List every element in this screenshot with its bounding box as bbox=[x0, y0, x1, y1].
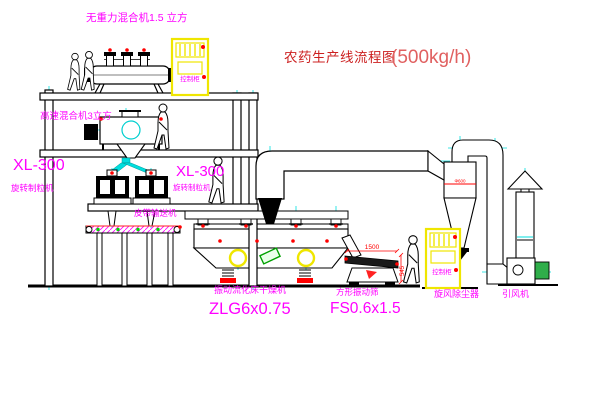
floor-slab-top bbox=[40, 93, 258, 100]
cabinet-top-label: 控制柜 bbox=[180, 74, 200, 83]
label-high-speed-mixer: 高速混合机3立方 bbox=[40, 110, 112, 122]
label-belt-conveyor: 皮带输送机 bbox=[134, 208, 177, 218]
duct-reducer bbox=[428, 151, 444, 180]
dim-screen-height: 545 bbox=[400, 265, 406, 276]
label-dryer-name: 振动流化床干燥机 bbox=[214, 284, 286, 295]
granulator-left bbox=[94, 170, 131, 226]
diagram-capacity: (500kg/h) bbox=[391, 47, 471, 68]
fluid-bed-dryer bbox=[194, 224, 348, 283]
belt-conveyor bbox=[86, 226, 180, 286]
label-granulator-left-name: 旋转制粒机 bbox=[11, 183, 54, 193]
square-vibrating-screen bbox=[342, 235, 403, 285]
diagram-title: 农药生产线流程图 bbox=[284, 50, 396, 65]
control-cabinet-right: 控制柜 bbox=[426, 229, 460, 288]
label-screen-model: FS0.6x1.5 bbox=[330, 300, 401, 317]
label-granulator-left-model: XL-300 bbox=[13, 157, 65, 174]
label-granulator-right-model: XL-300 bbox=[176, 163, 224, 180]
dim-cyclone-diameter: Φ600 bbox=[454, 179, 466, 184]
label-gravity-mixer: 无重力混合机1.5 立方 bbox=[86, 11, 188, 24]
process-flow-diagram: 控制柜 控制柜 无重力混合机1.5 立方 农药生产线流程图 (500kg/h bbox=[0, 0, 600, 403]
label-screen-name: 方形振动筛 bbox=[336, 287, 379, 297]
induced-draft-fan bbox=[507, 258, 535, 284]
pipe-elbow bbox=[487, 264, 509, 284]
label-dryer-model: ZLG6x0.75 bbox=[209, 300, 291, 318]
fan-motor-icon bbox=[535, 262, 549, 279]
floor-slab-middle bbox=[40, 150, 258, 157]
cad-drawing: 控制柜 控制柜 无重力混合机1.5 立方 农药生产线流程图 (500kg/h bbox=[0, 0, 600, 403]
cabinet-right-label: 控制柜 bbox=[432, 267, 452, 276]
control-cabinet-top: 控制柜 bbox=[172, 39, 208, 95]
ground-line bbox=[28, 285, 558, 288]
worker-figure bbox=[68, 53, 80, 90]
dryer-foot-pad bbox=[220, 278, 236, 283]
dryer-foot-pad bbox=[297, 278, 313, 283]
worker-figure bbox=[81, 51, 94, 90]
label-granulator-right-name: 旋转制粒机 bbox=[173, 182, 211, 192]
dim-screen-length: 1500 bbox=[365, 244, 380, 251]
screen-deck bbox=[345, 256, 398, 268]
gravity-free-mixer bbox=[84, 52, 176, 93]
label-fan: 引风机 bbox=[502, 288, 529, 299]
rain-cap-icon bbox=[508, 171, 542, 189]
exhaust-stack bbox=[516, 192, 534, 260]
label-cyclone: 旋风除尘器 bbox=[434, 288, 479, 299]
